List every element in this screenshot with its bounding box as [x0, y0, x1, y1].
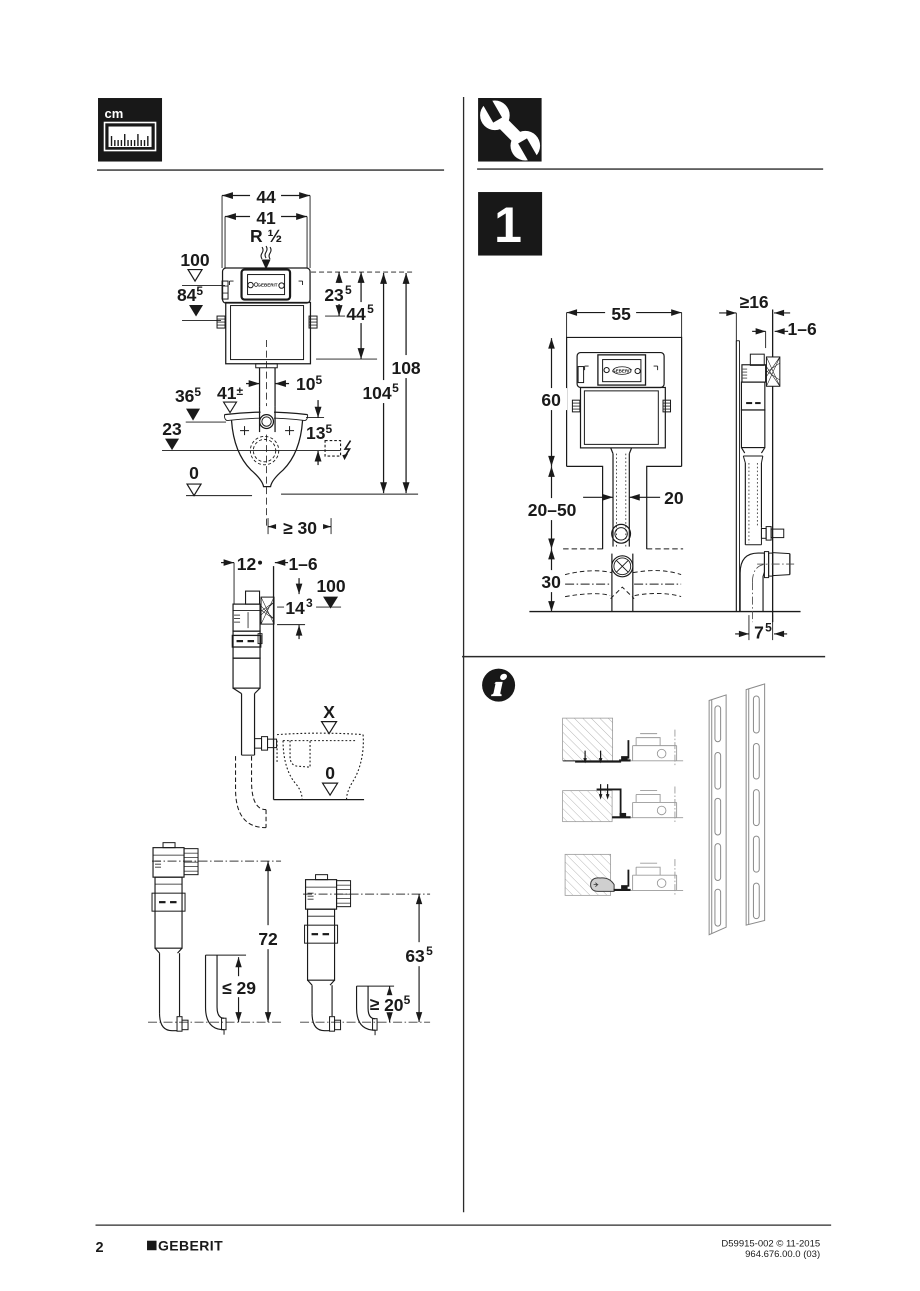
svg-text:≥: ≥: [370, 994, 380, 1014]
svg-text:1–6: 1–6: [288, 554, 317, 574]
svg-text:cm: cm: [105, 106, 124, 121]
svg-text:GEBERIT: GEBERIT: [612, 369, 632, 374]
svg-text:1: 1: [494, 197, 522, 253]
svg-text:R ½: R ½: [250, 226, 282, 246]
svg-text:55: 55: [611, 304, 631, 324]
svg-text:845: 845: [177, 284, 203, 305]
svg-text:44: 44: [346, 304, 366, 324]
svg-text:GEBERIT: GEBERIT: [258, 283, 278, 288]
svg-text:14: 14: [285, 598, 305, 618]
svg-text:72: 72: [258, 929, 278, 949]
svg-text:23: 23: [162, 419, 182, 439]
svg-text:20: 20: [384, 995, 404, 1015]
svg-text:≥16: ≥16: [740, 292, 769, 312]
svg-text:104: 104: [362, 383, 391, 403]
svg-text:41±: 41±: [217, 383, 243, 403]
svg-text:3: 3: [306, 596, 313, 610]
svg-text:GEBERIT: GEBERIT: [158, 1238, 223, 1254]
svg-text:2: 2: [96, 1240, 104, 1256]
svg-text:365: 365: [175, 385, 201, 406]
svg-text:5: 5: [404, 993, 411, 1007]
svg-text:41: 41: [256, 208, 276, 228]
svg-text:5: 5: [392, 381, 399, 395]
svg-text:12: 12: [237, 554, 257, 574]
svg-text:20: 20: [664, 488, 684, 508]
svg-text:20–50: 20–50: [528, 500, 577, 520]
svg-text:100: 100: [316, 576, 345, 596]
svg-text:30: 30: [541, 572, 561, 592]
svg-text:63: 63: [405, 946, 425, 966]
svg-text:0: 0: [189, 463, 199, 483]
svg-text:23: 23: [324, 285, 344, 305]
svg-text:≥ 30: ≥ 30: [283, 518, 317, 538]
svg-text:X: X: [323, 702, 335, 722]
svg-text:D59915-002 © 11-2015: D59915-002 © 11-2015: [721, 1239, 820, 1250]
svg-text:5: 5: [426, 944, 433, 958]
svg-text:108: 108: [391, 358, 420, 378]
svg-text:≤ 29: ≤ 29: [222, 978, 256, 998]
svg-text:7: 7: [754, 623, 764, 643]
svg-text:60: 60: [541, 390, 561, 410]
svg-text:5: 5: [765, 621, 772, 635]
svg-text:100: 100: [180, 250, 209, 270]
svg-text:964.676.00.0 (03): 964.676.00.0 (03): [745, 1249, 820, 1260]
svg-text:5: 5: [367, 302, 374, 316]
svg-text:5: 5: [345, 283, 352, 297]
svg-text:0: 0: [325, 763, 335, 783]
svg-text:105: 105: [296, 373, 322, 394]
svg-text:135: 135: [306, 422, 332, 443]
svg-text:1–6: 1–6: [788, 319, 817, 339]
svg-text:44: 44: [256, 187, 276, 207]
